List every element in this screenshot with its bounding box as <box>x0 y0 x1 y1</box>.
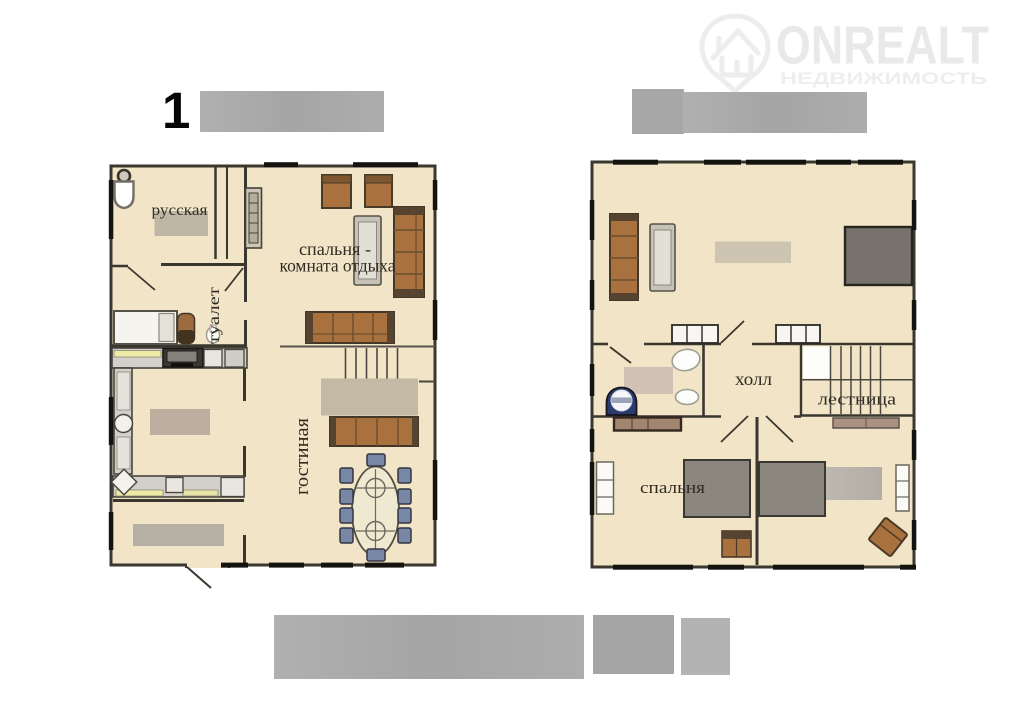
svg-text:1: 1 <box>162 82 190 139</box>
svg-text:лестница: лестница <box>818 390 897 409</box>
svg-text:спальня: спальня <box>640 478 705 497</box>
svg-text:комната отдыха: комната отдыха <box>280 256 396 276</box>
svg-text:туалет: туалет <box>206 287 223 344</box>
svg-text:НЕДВИЖИМОСТЬ: НЕДВИЖИМОСТЬ <box>780 69 987 88</box>
svg-text:холл: холл <box>735 369 772 389</box>
svg-text:русская: русская <box>152 202 208 219</box>
svg-text:гостиная: гостиная <box>293 417 313 495</box>
svg-text:ONREALT: ONREALT <box>776 16 989 76</box>
